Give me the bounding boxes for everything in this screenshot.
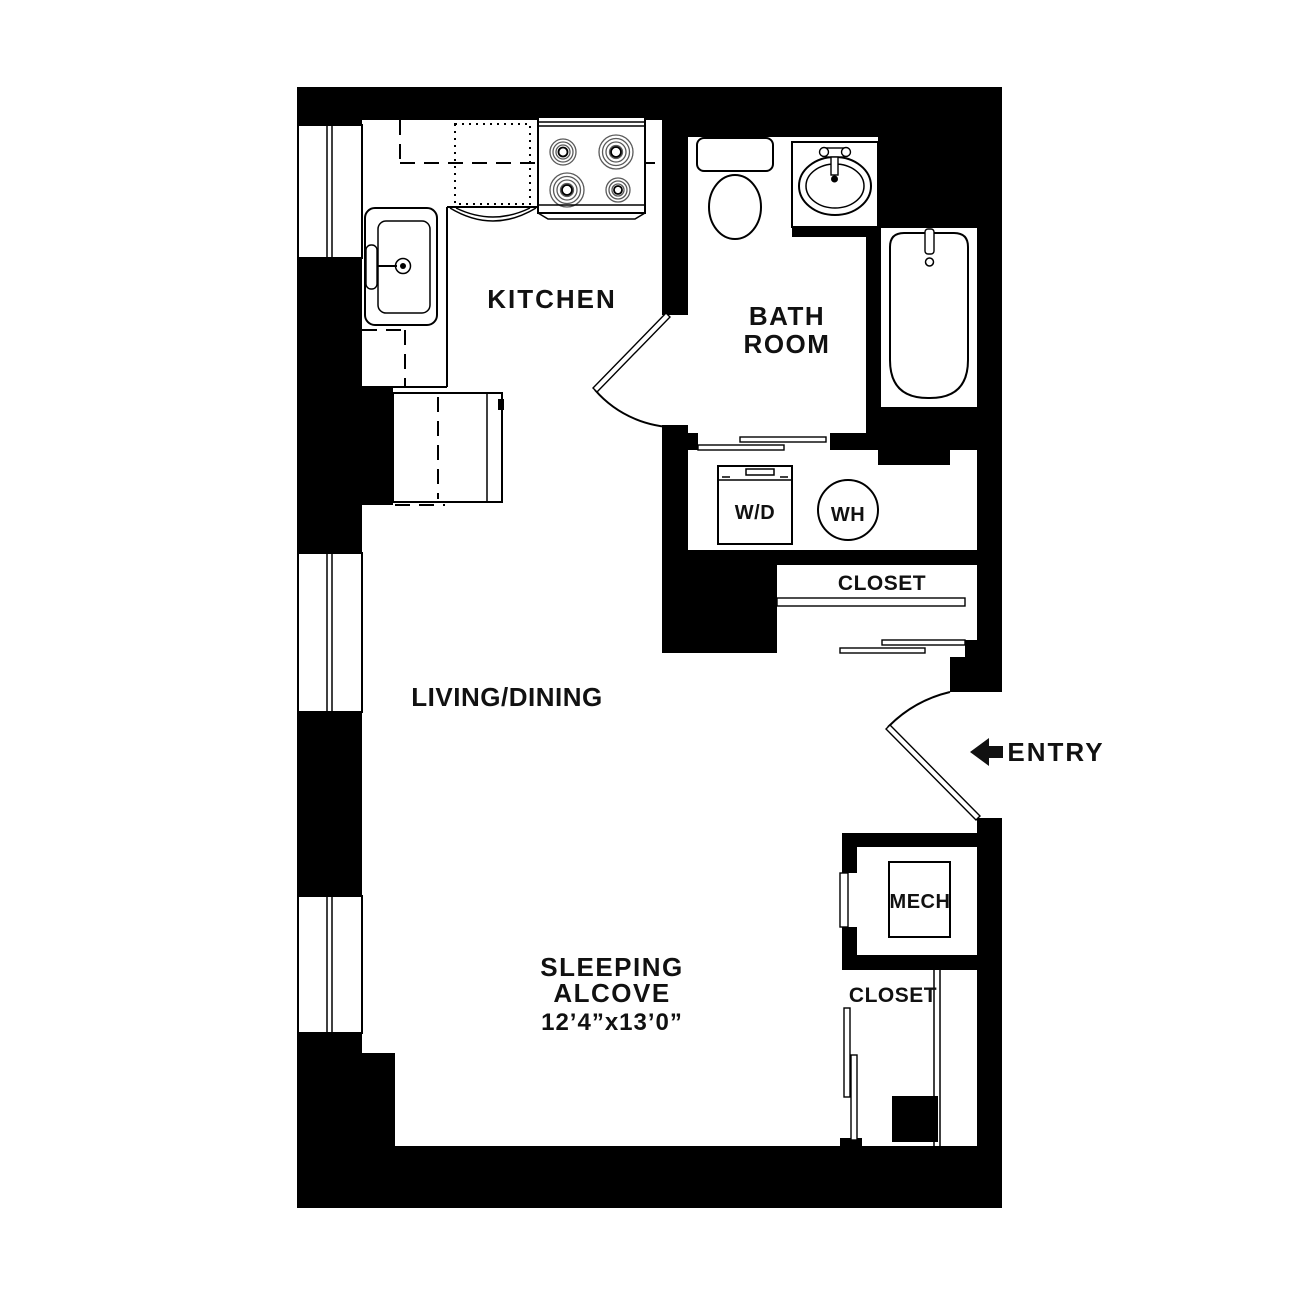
refrigerator — [393, 393, 504, 505]
wall-left-2 — [297, 712, 362, 896]
entry-label-group: ENTRY — [970, 737, 1105, 767]
wall-below-tub — [866, 407, 977, 450]
bathroom-door — [593, 313, 683, 427]
wall-top-bath — [686, 87, 878, 137]
entry-arrow-icon — [970, 738, 1003, 766]
stove — [538, 117, 645, 219]
kitchen-faucet-icon — [366, 245, 377, 289]
floor-plan-drawing: KITCHEN BATH ROOM LIVING/DINING W/D WH C… — [0, 0, 1300, 1300]
door-swing-arc — [888, 692, 950, 727]
bathroom-sink — [792, 142, 878, 227]
bathroom-label-line2: ROOM — [744, 329, 831, 359]
kitchen-label: KITCHEN — [487, 284, 617, 314]
closet-door-leaf — [840, 648, 925, 653]
bathroom-label-line1: BATH — [749, 301, 825, 331]
washer-dryer-label: W/D — [735, 502, 775, 524]
water-heater-label: WH — [831, 504, 865, 526]
wall-mech-left-upper — [842, 847, 857, 873]
toilet — [697, 138, 773, 239]
wall-kitchen-bath-lower — [662, 425, 688, 565]
wall-closet-left-block — [662, 550, 777, 653]
window-1 — [298, 125, 362, 258]
microwave-dotted — [455, 124, 530, 204]
closet-upper-label: CLOSET — [838, 572, 926, 595]
wall-wd-bottom-band — [777, 550, 977, 565]
wall-closet-right-step — [965, 640, 977, 657]
window-3 — [298, 896, 362, 1033]
entry-label: ENTRY — [1007, 737, 1104, 767]
closet-door-leaf — [844, 1008, 850, 1097]
sleeping-alcove-dimensions: 12’4”x13’0” — [541, 1009, 683, 1036]
bath-sliding-door-leaf — [698, 445, 784, 450]
wall-kitchen-bath-upper — [662, 87, 688, 315]
door-swing-arc — [595, 390, 683, 427]
wall-right-lower — [977, 818, 1002, 1208]
wall-right-upper — [977, 87, 1002, 692]
wall-right-entry-stub — [950, 657, 1002, 692]
fridge-handle-icon — [498, 399, 504, 410]
mech-label: MECH — [890, 891, 951, 913]
tub-faucet-icon — [925, 229, 934, 254]
mech-door-leaf — [840, 873, 848, 927]
wall-mech-left-lower — [842, 927, 857, 970]
wall-left-1 — [297, 258, 362, 555]
wall-top-left-corner — [297, 87, 362, 128]
wall-bottom — [297, 1146, 1002, 1208]
wall-bottom-left — [362, 1053, 395, 1153]
wall-closet-lower-block — [892, 1096, 938, 1142]
entry-door — [886, 692, 980, 820]
closet-track — [777, 598, 965, 606]
closet-lower-label: CLOSET — [849, 984, 937, 1007]
living-dining-label: LIVING/DINING — [411, 682, 602, 712]
wall-bath-jamb-right — [830, 433, 866, 450]
corner-cabinet-arc — [450, 208, 536, 221]
wall-below-tub-step — [878, 450, 950, 465]
sleeping-alcove-label-line2: ALCOVE — [553, 978, 670, 1008]
door-leaf — [593, 313, 670, 392]
closet-door-leaf — [851, 1055, 857, 1140]
closet-door-leaf — [882, 640, 965, 645]
floor-plan-page: KITCHEN BATH ROOM LIVING/DINING W/D WH C… — [0, 0, 1300, 1300]
stove-burner — [606, 178, 630, 202]
wall-bath-jamb-left — [685, 433, 698, 450]
wall-mech-top — [842, 833, 977, 847]
bathtub — [881, 228, 977, 407]
door-leaf — [886, 725, 980, 820]
kitchen-sink — [365, 208, 437, 325]
wall-mech-bottom — [857, 955, 977, 970]
wall-fridge-bump — [362, 387, 393, 505]
closet-upper — [777, 598, 965, 653]
bath-sliding-door-leaf — [740, 437, 826, 442]
window-2 — [298, 553, 362, 712]
